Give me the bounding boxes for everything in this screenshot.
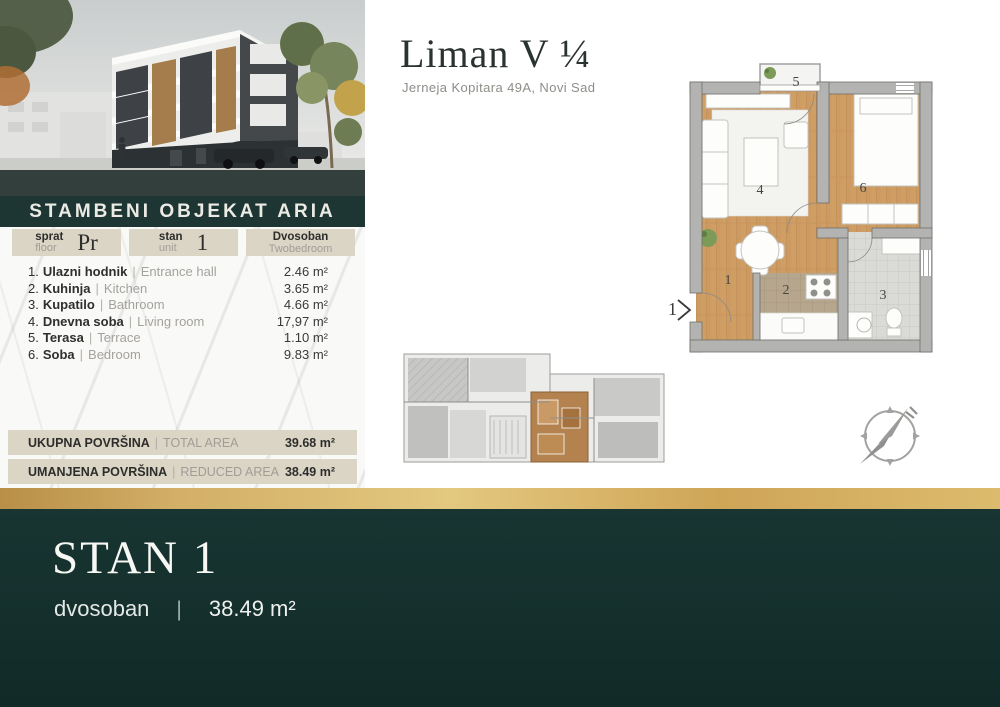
entrance-marker: 1 <box>668 299 690 320</box>
brochure-page: STAMBENI OBJEKAT ARIA sprat floor Pr sta… <box>0 0 1000 707</box>
floor-label-en: floor <box>35 243 63 254</box>
type-cell: Dvosoban Twobedroom <box>246 229 355 256</box>
left-panel: STAMBENI OBJEKAT ARIA sprat floor Pr sta… <box>0 0 365 488</box>
reduced-area-row: UMANJENA POVRŠINA | REDUCED AREA 38.49 m… <box>8 459 357 484</box>
room-name-en: Bedroom <box>88 347 141 364</box>
type-sr: Dvosoban <box>273 231 329 243</box>
building-photo <box>0 0 365 196</box>
tv-cabinet <box>706 94 790 108</box>
plan-room-5: 5 <box>793 75 800 90</box>
room-name-en: Living room <box>137 314 204 331</box>
room-name-sr: Terasa <box>43 330 84 347</box>
room-list: 1. Ulazni hodnik | Entrance hall 2.46 m²… <box>28 264 328 363</box>
unit-label-en: unit <box>159 243 183 254</box>
chevron-right-icon <box>678 300 690 320</box>
separator: | <box>129 314 132 331</box>
room-number: 4. <box>28 314 39 331</box>
plan-room-6: 6 <box>860 181 867 196</box>
room-number: 2. <box>28 281 39 298</box>
room-name-en: Entrance hall <box>141 264 217 281</box>
room-row: 3. Kupatilo | Bathroom 4.66 m² <box>28 297 328 314</box>
pillow <box>860 98 912 114</box>
unit-subtitle: dvosoban | 38.49 m² <box>54 596 296 622</box>
separator: | <box>89 330 92 347</box>
gold-divider <box>0 488 1000 509</box>
total-label-sr: UKUPNA POVRŠINA <box>28 436 150 450</box>
stove <box>806 275 836 299</box>
unit-label-sr: stan <box>159 232 183 243</box>
reduced-label-en: REDUCED AREA <box>180 465 279 479</box>
room-row: 1. Ulazni hodnik | Entrance hall 2.46 m² <box>28 264 328 281</box>
room-row: 4. Dnevna soba | Living room 17,97 m² <box>28 314 328 331</box>
room-name-sr: Ulazni hodnik <box>43 264 128 281</box>
room-area: 17,97 m² <box>277 314 328 331</box>
room-number: 3. <box>28 297 39 314</box>
room-name-sr: Kuhinja <box>43 281 91 298</box>
separator: | <box>80 347 83 364</box>
separator: | <box>172 465 175 479</box>
unit-value: 1 <box>197 230 209 256</box>
separator: | <box>100 297 103 314</box>
total-area-row: UKUPNA POVRŠINA | TOTAL AREA 39.68 m² <box>8 430 357 455</box>
project-name: STAMBENI OBJEKAT ARIA <box>29 201 335 223</box>
unit-meta-row: sprat floor Pr stan unit 1 Dvosoban Twob… <box>12 229 355 256</box>
compass-icon <box>850 394 928 472</box>
plan-room-4: 4 <box>757 183 764 198</box>
room-name-sr: Dnevna soba <box>43 314 124 331</box>
coffee-table <box>744 138 778 186</box>
dresser <box>842 204 918 224</box>
room-row: 6. Soba | Bedroom 9.83 m² <box>28 347 328 364</box>
room-name-sr: Kupatilo <box>43 297 95 314</box>
room-number: 5. <box>28 330 39 347</box>
floor-plan: 1 2 3 4 5 6 1 <box>656 62 942 362</box>
room-name-en: Terrace <box>97 330 140 347</box>
room-area: 2.46 m² <box>284 264 328 281</box>
address: Jerneja Kopitara 49A, Novi Sad <box>402 80 595 95</box>
type-en: Twobedroom <box>269 243 333 255</box>
armchair <box>784 122 808 148</box>
separator: | <box>132 264 135 281</box>
room-area: 9.83 m² <box>284 347 328 364</box>
separator: | <box>96 281 99 298</box>
plan-room-1: 1 <box>725 273 732 288</box>
unit-cell: stan unit 1 <box>129 229 238 256</box>
project-banner: STAMBENI OBJEKAT ARIA <box>0 196 365 227</box>
room-name-sr: Soba <box>43 347 75 364</box>
unit-area: 38.49 m² <box>209 596 296 622</box>
room-area: 3.65 m² <box>284 281 328 298</box>
plan-room-3: 3 <box>880 288 887 303</box>
floor-label-sr: sprat <box>35 232 63 243</box>
mini-floor-plan <box>398 350 670 468</box>
room-row: 5. Terasa | Terrace 1.10 m² <box>28 330 328 347</box>
page-title: Liman V ¼ <box>400 30 591 77</box>
unit-title: STAN 1 <box>52 531 218 585</box>
plant-icon <box>764 67 776 79</box>
room-area: 4.66 m² <box>284 297 328 314</box>
separator: | <box>176 598 181 622</box>
room-number: 1. <box>28 264 39 281</box>
sofa <box>702 120 728 218</box>
washing-machine <box>848 312 872 338</box>
floor-value: Pr <box>77 230 97 256</box>
floor-cell: sprat floor Pr <box>12 229 121 256</box>
total-label-en: TOTAL AREA <box>163 436 239 450</box>
toilet <box>886 308 902 328</box>
sink <box>782 318 804 333</box>
room-row: 2. Kuhinja | Kitchen 3.65 m² <box>28 281 328 298</box>
unit-type: dvosoban <box>54 596 149 622</box>
room-area: 1.10 m² <box>284 330 328 347</box>
total-value: 39.68 m² <box>285 436 335 450</box>
room-name-en: Bathroom <box>108 297 164 314</box>
separator: | <box>155 436 158 450</box>
reduced-value: 38.49 m² <box>285 465 335 479</box>
svg-text:1: 1 <box>668 299 677 319</box>
plan-room-2: 2 <box>783 283 790 298</box>
reduced-label-sr: UMANJENA POVRŠINA <box>28 465 167 479</box>
room-number: 6. <box>28 347 39 364</box>
room-name-en: Kitchen <box>104 281 147 298</box>
